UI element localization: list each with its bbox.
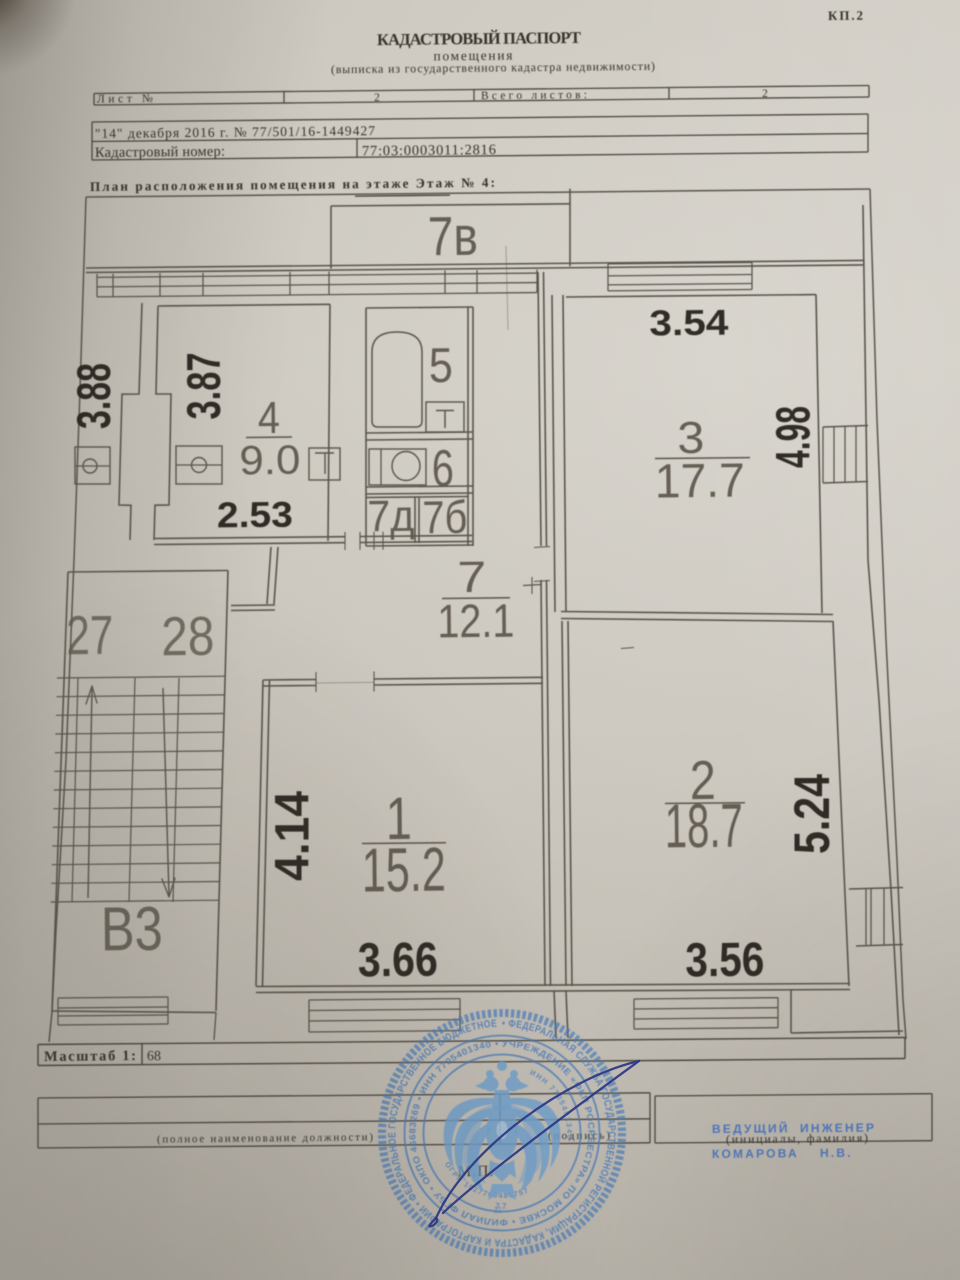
svg-text:Масштаб 1:: Масштаб 1: (44, 1048, 136, 1065)
svg-text:7д: 7д (367, 492, 415, 541)
svg-text:5: 5 (429, 339, 454, 393)
svg-text:План расположения помещения на: План расположения помещения на этаже Эта… (90, 175, 495, 194)
svg-text:17.7: 17.7 (655, 455, 746, 509)
svg-text:В3: В3 (100, 895, 163, 965)
svg-text:3.56: 3.56 (685, 934, 765, 988)
svg-text:ВЕДУЩИЙ: ВЕДУЩИЙ (712, 1120, 790, 1136)
svg-text:ИНЖЕНЕР: ИНЖЕНЕР (800, 1121, 876, 1136)
svg-text:12.1: 12.1 (437, 594, 515, 648)
svg-text:Всего листов:: Всего листов: (481, 89, 587, 102)
svg-text:68: 68 (147, 1049, 161, 1064)
svg-text:КАДАСТРОВЫЙ ПАСПОРТ: КАДАСТРОВЫЙ ПАСПОРТ (377, 28, 581, 49)
svg-text:2: 2 (374, 92, 380, 104)
svg-text:18.7: 18.7 (664, 792, 743, 862)
svg-text:КП.2: КП.2 (828, 8, 863, 23)
svg-text:77:03:0003011:2816: 77:03:0003011:2816 (362, 142, 496, 159)
svg-text:Лист №: Лист № (97, 93, 153, 106)
svg-text:15.2: 15.2 (361, 836, 446, 906)
svg-text:7в: 7в (427, 205, 478, 268)
svg-text:5.24: 5.24 (784, 774, 840, 854)
svg-text:27: 27 (66, 604, 114, 666)
svg-text:9.0: 9.0 (239, 437, 300, 484)
svg-text:4: 4 (258, 392, 281, 443)
svg-text:"14" декабря 2016 г. № 77/501/: "14" декабря 2016 г. № 77/501/16-1449427 (95, 123, 375, 141)
svg-text:3.66: 3.66 (358, 934, 439, 988)
svg-text:2: 2 (762, 88, 768, 100)
svg-text:(выписка из государственного к: (выписка из государственного кадастра не… (331, 59, 655, 76)
svg-text:Н.В.: Н.В. (820, 1146, 853, 1160)
svg-text:6: 6 (432, 440, 455, 498)
svg-text:4.14: 4.14 (266, 791, 319, 881)
svg-text:4.98: 4.98 (767, 406, 820, 468)
svg-text:3.54: 3.54 (649, 302, 728, 344)
svg-text:7б: 7б (422, 491, 468, 543)
svg-text:Кадастровый номер:: Кадастровый номер: (95, 144, 225, 161)
svg-text:11: 11 (493, 1205, 502, 1215)
svg-text:КОМАРОВА: КОМАРОВА (712, 1146, 799, 1161)
svg-text:3.88: 3.88 (67, 363, 120, 429)
svg-text:(полное наименование должности: (полное наименование должности) (157, 1131, 373, 1145)
svg-text:2.53: 2.53 (217, 494, 293, 536)
svg-text:3.87: 3.87 (177, 353, 230, 420)
svg-text:28: 28 (161, 605, 215, 668)
